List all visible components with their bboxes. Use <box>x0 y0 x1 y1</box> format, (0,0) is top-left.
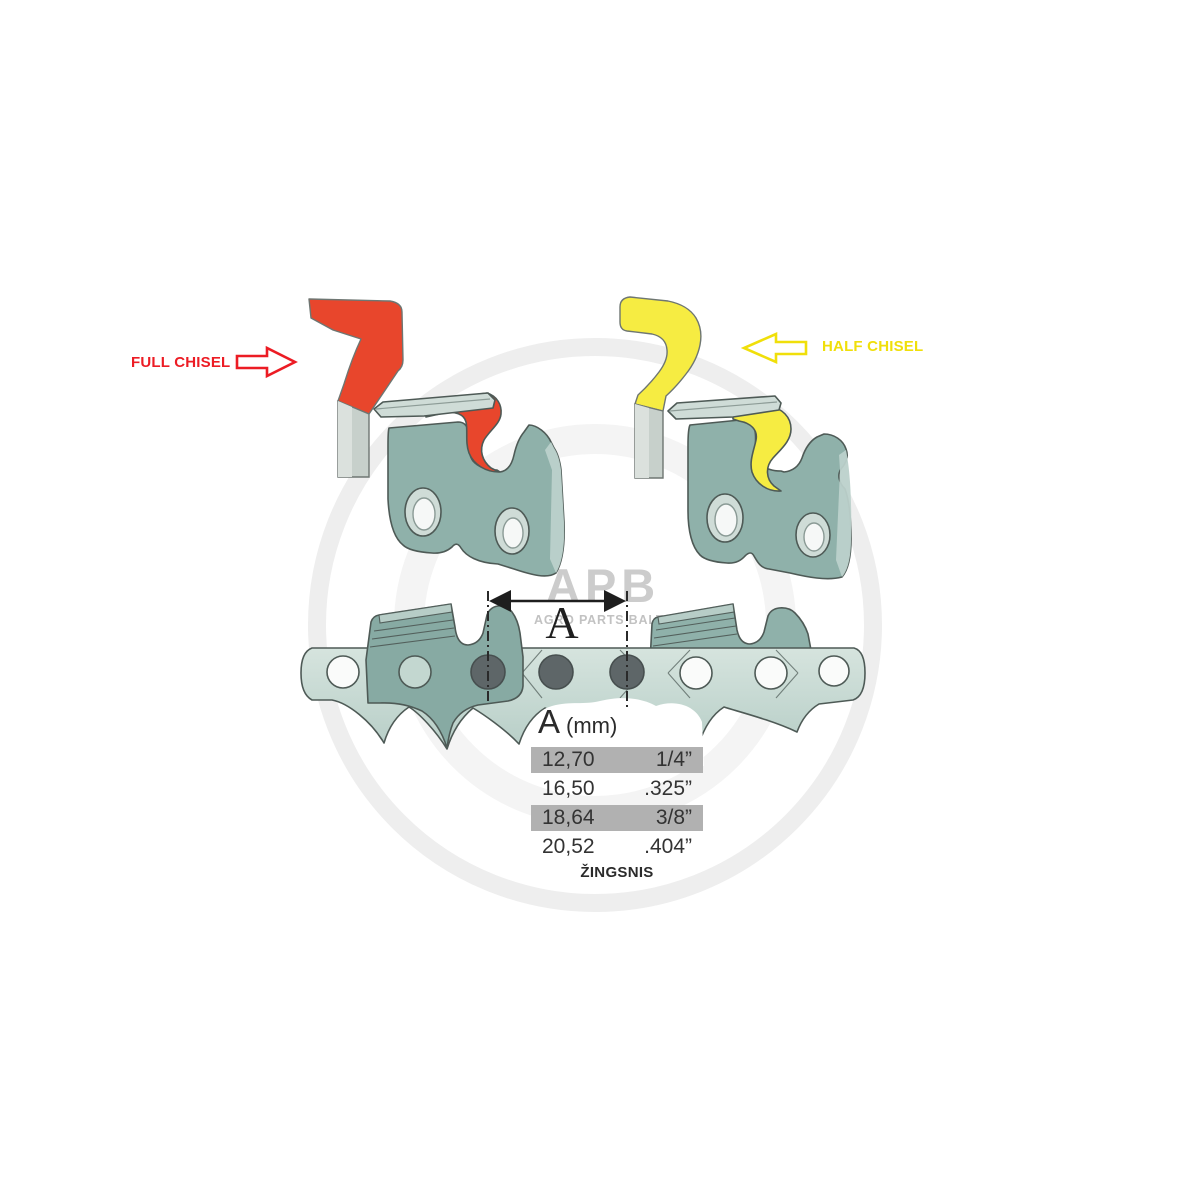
half-chisel-label: HALF CHISEL <box>822 338 923 355</box>
full-chisel-hole <box>413 498 435 530</box>
pitch-inch-value: 3/8” <box>656 806 692 830</box>
table-row: 12,70 1/4” <box>531 747 703 773</box>
strap-hole <box>327 656 359 688</box>
full-chisel-profile-shape <box>309 299 403 414</box>
pitch-inch-value: 1/4” <box>656 748 692 772</box>
half-chisel-hole <box>715 504 737 536</box>
pitch-caption: ŽINGSNIS <box>531 864 703 881</box>
table-row: 16,50 .325” <box>531 776 703 802</box>
pitch-inch-value: .404” <box>644 835 692 859</box>
full-chisel-profile-leg-highlight <box>338 401 352 477</box>
pitch-table-header: A(mm) <box>538 703 617 741</box>
pitch-table-header-unit: (mm) <box>566 713 617 738</box>
dimension-letter: A <box>545 597 578 648</box>
chainsaw-chain-diagram: APB AGRO PARTS BALTIJA <box>0 0 1188 1188</box>
table-row: 20,52 .404” <box>531 834 703 860</box>
pitch-table-header-letter: A <box>538 703 560 740</box>
pitch-mm-value: 20,52 <box>542 835 595 859</box>
left-cutter-hole <box>399 656 431 688</box>
half-chisel-profile-leg-highlight <box>635 404 649 478</box>
rivets <box>471 655 644 689</box>
full-chisel-hole <box>503 518 523 548</box>
pitch-mm-value: 12,70 <box>542 748 595 772</box>
full-chisel-arrow-icon <box>237 348 295 376</box>
pitch-inch-value: .325” <box>644 777 692 801</box>
half-chisel-arrow-icon <box>744 334 806 362</box>
diagram-canvas: APB AGRO PARTS BALTIJA <box>0 0 1188 1188</box>
pitch-table: 12,70 1/4” 16,50 .325” 18,64 3/8” 20,52 … <box>531 747 703 863</box>
half-chisel-cutter-3d <box>668 396 851 579</box>
pitch-mm-value: 18,64 <box>542 806 595 830</box>
full-chisel-label: FULL CHISEL <box>131 354 230 371</box>
strap-hole <box>680 657 712 689</box>
half-chisel-hole <box>804 523 824 551</box>
rivet <box>539 655 573 689</box>
pitch-mm-value: 16,50 <box>542 777 595 801</box>
strap-hole <box>755 657 787 689</box>
table-row: 18,64 3/8” <box>531 805 703 831</box>
strap-hole <box>819 656 849 686</box>
